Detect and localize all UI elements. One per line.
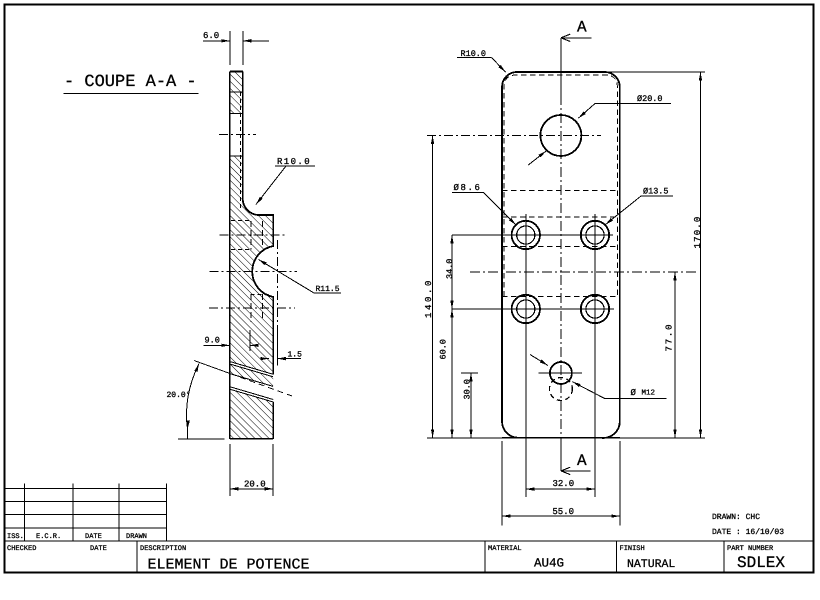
svg-text:34.0: 34.0 [445, 259, 455, 279]
svg-text:60.0: 60.0 [439, 339, 449, 359]
svg-text:6.0: 6.0 [203, 31, 219, 41]
svg-text:CHECKED: CHECKED [7, 545, 36, 553]
svg-text:Ø13.5: Ø13.5 [643, 187, 669, 197]
svg-text:ELEMENT DE POTENCE: ELEMENT DE POTENCE [148, 557, 310, 574]
svg-text:77.0: 77.0 [665, 323, 675, 352]
svg-text:30.0: 30.0 [463, 379, 473, 399]
svg-text:140.0: 140.0 [424, 278, 434, 318]
svg-text:AU4G: AU4G [534, 557, 564, 571]
svg-text:NATURAL: NATURAL [627, 558, 675, 571]
svg-text:MATERIAL: MATERIAL [488, 545, 522, 553]
svg-text:E.C.R.: E.C.R. [36, 533, 61, 541]
svg-text:A: A [577, 19, 587, 37]
svg-text:DATE : 16/10/03: DATE : 16/10/03 [712, 528, 784, 537]
svg-text:DRAWN: DRAWN [126, 533, 147, 541]
svg-text:Ø20.0: Ø20.0 [637, 94, 663, 104]
svg-text:20.0°: 20.0° [167, 391, 191, 400]
svg-text:DATE: DATE [85, 533, 102, 541]
svg-text:FINISH: FINISH [620, 545, 645, 553]
svg-text:A: A [577, 452, 587, 470]
svg-text:Ø: Ø [631, 388, 637, 398]
svg-text:170.0: 170.0 [693, 215, 703, 248]
svg-text:SDLEX: SDLEX [737, 554, 785, 572]
svg-text:ISS.: ISS. [7, 533, 24, 541]
svg-text:M12: M12 [642, 389, 656, 398]
svg-text:9.0: 9.0 [205, 336, 220, 346]
svg-text:1.5: 1.5 [288, 350, 303, 359]
svg-text:32.0: 32.0 [553, 479, 575, 489]
svg-text:PART NUMBER: PART NUMBER [727, 545, 774, 553]
svg-text:DESCRIPTION: DESCRIPTION [140, 545, 186, 553]
svg-text:DRAWN: CHC: DRAWN: CHC [712, 513, 760, 522]
svg-text:Ø8.6: Ø8.6 [454, 183, 482, 193]
svg-text:55.0: 55.0 [552, 507, 574, 517]
svg-text:DATE: DATE [90, 545, 107, 553]
svg-text:- COUPE A-A -: - COUPE A-A - [64, 73, 197, 92]
svg-text:20.0: 20.0 [244, 480, 266, 490]
